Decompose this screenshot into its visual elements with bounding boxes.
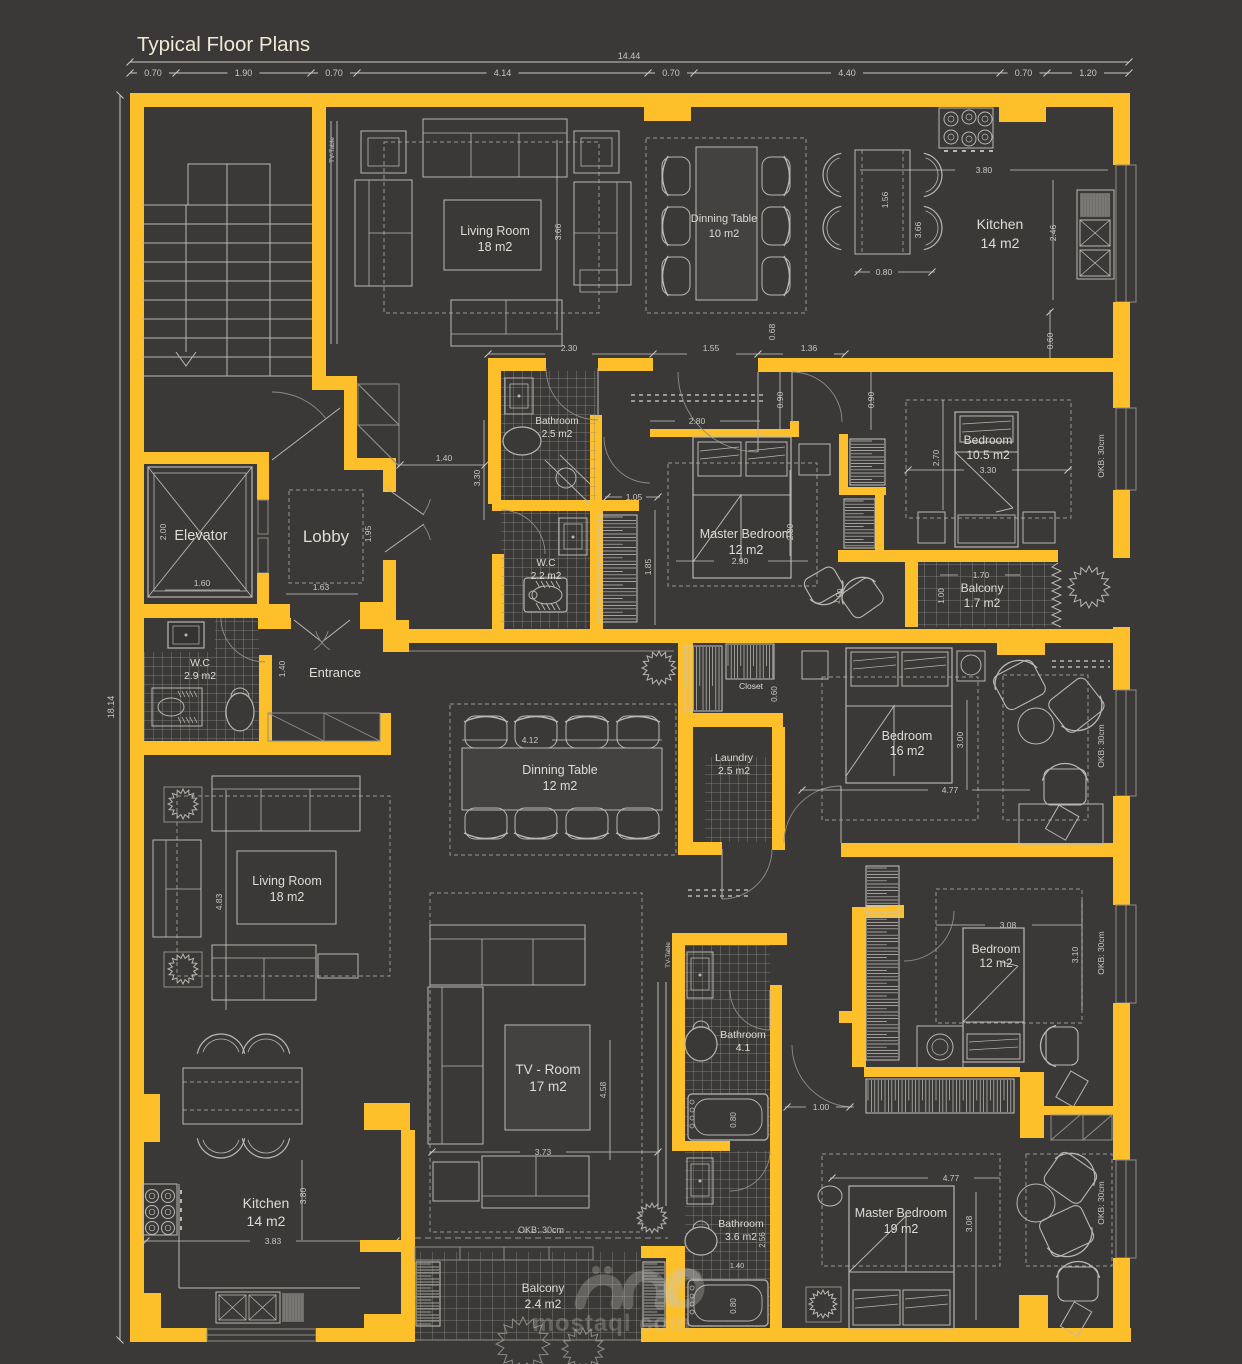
- svg-text:1.63: 1.63: [313, 582, 330, 592]
- svg-text:1.20: 1.20: [1079, 68, 1097, 78]
- svg-text:4.12: 4.12: [522, 735, 539, 745]
- svg-text:Dinning Table: Dinning Table: [691, 213, 757, 225]
- svg-text:0.70: 0.70: [1015, 68, 1033, 78]
- svg-text:3.73: 3.73: [535, 1147, 552, 1157]
- svg-text:0.80: 0.80: [876, 267, 893, 277]
- svg-text:mostaql com: mostaql com: [532, 1310, 691, 1337]
- svg-text:17 m2: 17 m2: [529, 1079, 567, 1094]
- svg-text:3.66: 3.66: [553, 223, 563, 240]
- svg-text:4.83: 4.83: [214, 893, 224, 910]
- svg-text:Master Bedroom: Master Bedroom: [700, 527, 792, 541]
- svg-text:3.6 m2: 3.6 m2: [725, 1231, 757, 1243]
- svg-text:0.80: 0.80: [729, 1298, 738, 1314]
- svg-text:16 m2: 16 m2: [890, 744, 925, 758]
- svg-text:2.80: 2.80: [785, 523, 795, 540]
- svg-text:4.40: 4.40: [838, 68, 856, 78]
- svg-text:1.60: 1.60: [194, 578, 211, 588]
- svg-text:Balcony: Balcony: [961, 581, 1004, 595]
- svg-text:Elevator: Elevator: [174, 528, 227, 544]
- svg-text:4.14: 4.14: [494, 68, 512, 78]
- svg-text:18 m2: 18 m2: [270, 890, 305, 904]
- svg-text:Laundry: Laundry: [715, 752, 754, 764]
- svg-text:12 m2: 12 m2: [729, 543, 764, 557]
- svg-text:Living Room: Living Room: [252, 874, 321, 888]
- svg-text:1.55: 1.55: [703, 343, 720, 353]
- svg-text:2.5 m2: 2.5 m2: [542, 429, 573, 440]
- svg-text:OKB: 30cm: OKB: 30cm: [1096, 1181, 1106, 1224]
- svg-text:1.00: 1.00: [813, 1102, 830, 1112]
- svg-text:4.77: 4.77: [943, 1173, 960, 1183]
- svg-text:10 m2: 10 m2: [709, 228, 740, 240]
- svg-text:Entrance: Entrance: [309, 665, 361, 680]
- svg-text:Kitchen: Kitchen: [977, 216, 1024, 232]
- svg-text:2.80: 2.80: [689, 416, 706, 426]
- svg-text:2.46: 2.46: [1048, 224, 1058, 241]
- svg-text:Dinning Table: Dinning Table: [522, 763, 598, 777]
- svg-text:3.30: 3.30: [472, 469, 482, 486]
- svg-text:1.7 m2: 1.7 m2: [964, 596, 1001, 610]
- svg-text:Typical Floor Plans: Typical Floor Plans: [137, 33, 310, 56]
- svg-text:19 m2: 19 m2: [884, 1222, 919, 1236]
- svg-text:Bedroom: Bedroom: [882, 729, 933, 743]
- svg-text:3.80: 3.80: [298, 1187, 308, 1204]
- svg-text:0.70: 0.70: [325, 68, 343, 78]
- svg-text:4.58: 4.58: [598, 1081, 608, 1098]
- svg-text:2.00: 2.00: [158, 523, 168, 540]
- svg-text:2.70: 2.70: [931, 449, 941, 466]
- svg-text:0.60: 0.60: [770, 686, 779, 702]
- svg-text:0.60: 0.60: [1045, 332, 1055, 349]
- svg-text:TV-Table: TV-Table: [329, 137, 336, 163]
- svg-text:2.30: 2.30: [561, 343, 578, 353]
- svg-text:Bathroom: Bathroom: [535, 416, 578, 427]
- svg-text:0.90: 0.90: [775, 391, 785, 408]
- svg-text:W.C: W.C: [190, 657, 210, 669]
- svg-text:Lobby: Lobby: [303, 527, 350, 546]
- svg-text:3.10: 3.10: [1070, 946, 1080, 963]
- svg-text:Bedroom: Bedroom: [972, 942, 1021, 956]
- svg-text:Living Room: Living Room: [460, 224, 529, 238]
- svg-text:1.40: 1.40: [277, 660, 287, 677]
- svg-text:1.56: 1.56: [880, 191, 890, 208]
- svg-text:3.00: 3.00: [955, 731, 965, 748]
- svg-text:1.00: 1.00: [937, 588, 946, 604]
- svg-text:1.05: 1.05: [626, 492, 643, 502]
- svg-text:4.77: 4.77: [942, 785, 959, 795]
- svg-text:14.44: 14.44: [618, 51, 641, 61]
- svg-text:14 m2: 14 m2: [981, 235, 1020, 251]
- svg-text:2.56: 2.56: [758, 1232, 767, 1248]
- svg-text:W.C: W.C: [537, 558, 556, 569]
- svg-text:2.90: 2.90: [732, 556, 749, 566]
- svg-text:TV-Table: TV-Table: [665, 942, 672, 968]
- svg-text:Master Bedroom: Master Bedroom: [855, 1206, 947, 1220]
- svg-text:Closet: Closet: [739, 681, 764, 691]
- svg-text:Balcony: Balcony: [522, 1281, 565, 1295]
- svg-text:3.30: 3.30: [980, 465, 997, 475]
- svg-text:1.40: 1.40: [730, 1261, 745, 1270]
- svg-text:18 m2: 18 m2: [478, 240, 513, 254]
- svg-text:1.90: 1.90: [235, 68, 253, 78]
- svg-text:3.80: 3.80: [976, 165, 993, 175]
- svg-text:TV - Room: TV - Room: [515, 1062, 580, 1077]
- svg-text:0.68: 0.68: [767, 323, 777, 340]
- svg-text:Bedroom: Bedroom: [964, 433, 1013, 447]
- svg-text:2.2 m2: 2.2 m2: [531, 571, 562, 582]
- svg-text:OKB: 30cm: OKB: 30cm: [1096, 724, 1106, 767]
- svg-text:2.5 m2: 2.5 m2: [718, 765, 750, 777]
- svg-text:1.95: 1.95: [363, 525, 373, 542]
- svg-text:OKB: 30cm: OKB: 30cm: [518, 1225, 564, 1235]
- svg-text:3.83: 3.83: [265, 1236, 282, 1246]
- svg-text:12 m2: 12 m2: [979, 956, 1013, 970]
- svg-text:2.4 m2: 2.4 m2: [525, 1297, 562, 1311]
- svg-text:12 m2: 12 m2: [543, 779, 578, 793]
- svg-text:1.85: 1.85: [643, 558, 653, 575]
- svg-text:18.14: 18.14: [106, 696, 116, 719]
- svg-text:OKB: 30cm: OKB: 30cm: [1096, 931, 1106, 974]
- svg-text:1.36: 1.36: [801, 343, 818, 353]
- svg-text:10.5 m2: 10.5 m2: [966, 448, 1010, 462]
- svg-text:0.90: 0.90: [866, 391, 876, 408]
- svg-text:4.1: 4.1: [736, 1042, 751, 1054]
- svg-text:3.66: 3.66: [913, 221, 923, 238]
- svg-text:0.70: 0.70: [144, 68, 162, 78]
- svg-text:14 m2: 14 m2: [247, 1213, 286, 1229]
- svg-text:Kitchen: Kitchen: [243, 1195, 290, 1211]
- svg-text:3.08: 3.08: [964, 1215, 974, 1232]
- svg-text:OKB: 30cm: OKB: 30cm: [1096, 434, 1106, 477]
- svg-text:0.80: 0.80: [729, 1112, 738, 1128]
- svg-text:Bathroom: Bathroom: [720, 1029, 766, 1041]
- svg-text:1.40: 1.40: [436, 453, 453, 463]
- svg-text:1.70: 1.70: [973, 570, 990, 580]
- svg-text:Bathroom: Bathroom: [718, 1218, 764, 1230]
- svg-text:2.9 m2: 2.9 m2: [184, 670, 216, 682]
- svg-text:0.70: 0.70: [662, 68, 680, 78]
- svg-text:3.08: 3.08: [1000, 920, 1017, 930]
